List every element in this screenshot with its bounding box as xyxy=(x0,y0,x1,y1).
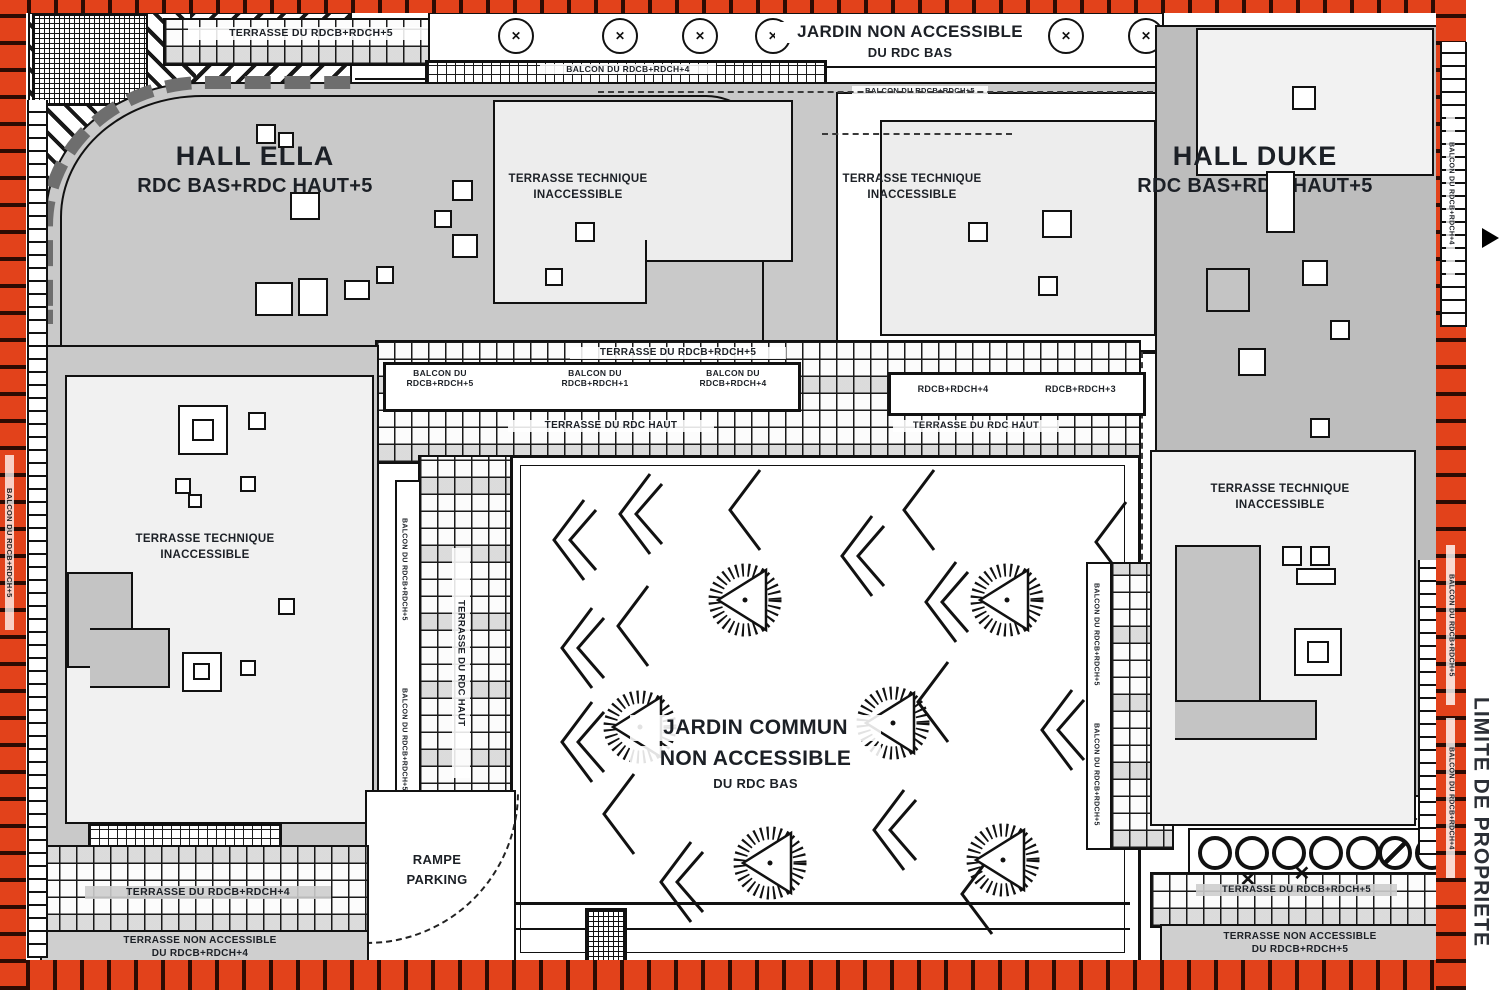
roof-vent xyxy=(255,282,293,316)
label-terrasse-mid: TERRASSE DU RDCB+RDCH+5 xyxy=(570,347,786,359)
label-terrasse-bottom-right: TERRASSE DU RDCB+RDCH+5 xyxy=(1196,884,1397,896)
roof-vent xyxy=(1310,418,1330,438)
label-jardin-top-1: JARDIN NON ACCESSIBLE xyxy=(775,22,1045,43)
label-balcon-right-v2: BALCON DU RDCB+RDCH+5 xyxy=(1446,545,1455,705)
label-jardin-commun-1: JARDIN COMMUN xyxy=(630,715,881,741)
roof-vent xyxy=(248,412,266,430)
tree-icon: ✕ xyxy=(1048,18,1084,54)
tree-cross-icon: ✕ xyxy=(1061,29,1071,43)
property-border-top xyxy=(0,0,1462,13)
roof-vent-gray xyxy=(1206,268,1250,312)
label-terrasse-technique-2a: TERRASSE TECHNIQUE xyxy=(812,172,1012,186)
tree-icon: ✕ xyxy=(682,18,718,54)
label-balcon-top: BALCON DU RDCB+RDCH+4 xyxy=(540,64,716,74)
label-hall-ella: HALL ELLA xyxy=(130,140,380,173)
label-balcon-right-v3: BALCON DU RDCB+RDCH+4 xyxy=(1446,718,1455,878)
roof-vent xyxy=(968,222,988,242)
zigzag-decoration xyxy=(548,498,598,582)
roof-vent xyxy=(188,494,202,508)
north-arrow-icon xyxy=(1482,228,1499,248)
roof-vent xyxy=(344,280,370,300)
tree-icon: ✕ xyxy=(498,18,534,54)
planter-circle xyxy=(1235,836,1269,870)
label-terrasse-rdc-haut-2: TERRASSE DU RDC HAUT xyxy=(893,420,1059,432)
zigzag-decoration xyxy=(655,840,705,924)
label-bottom-right-band-2: DU RDCB+RDCH+5 xyxy=(1180,944,1420,956)
roof-vent xyxy=(1282,546,1302,566)
roof-vent xyxy=(192,419,214,441)
label-balcon-right-col-2: BALCON DU RDCB+RDCH+5 xyxy=(1091,708,1100,840)
dashed-line xyxy=(822,133,1012,135)
dark-tree-mark: ✕ xyxy=(1290,862,1314,886)
garden-tree xyxy=(958,815,1048,905)
label-terrasse-technique-4a: TERRASSE TECHNIQUE xyxy=(1180,482,1380,496)
label-bottom-right-band-1: TERRASSE NON ACCESSIBLE xyxy=(1180,931,1420,943)
label-bottom-left-band-2: DU RDCB+RDCH+4 xyxy=(80,948,320,960)
label-rdcb3: RDCB+RDCH+3 xyxy=(1028,384,1133,395)
label-terrasse-technique-2b: INACCESSIBLE xyxy=(812,188,1012,202)
label-balcon-4: BALCON DU RDCB+RDCH+4 xyxy=(683,368,783,389)
roof-vent xyxy=(298,278,328,316)
roof-vent xyxy=(376,266,394,284)
label-jardin-top-2: DU RDC BAS xyxy=(840,45,980,61)
site-plan: TERRASSE DU RDCB+RDCH+5 ✕ ✕ ✕ ✕ ✕ ✕ JARD… xyxy=(0,0,1500,990)
label-hall-duke: HALL DUKE xyxy=(1130,140,1380,173)
label-terrasse-bottom-left: TERRASSE DU RDCB+RDCH+4 xyxy=(85,886,331,899)
roof-vent xyxy=(434,210,452,228)
planter-circle-slashed xyxy=(1378,836,1412,870)
balcon-4-line2: RDCB+RDCH+4 xyxy=(683,378,783,388)
zigzag-decoration xyxy=(898,468,948,552)
roof-vent xyxy=(1307,641,1329,663)
label-rdcb4: RDCB+RDCH+4 xyxy=(898,384,1008,395)
balcon-1-line1: BALCON DU xyxy=(545,368,645,378)
garden-tree xyxy=(700,555,790,645)
label-terrasse-technique-3a: TERRASSE TECHNIQUE xyxy=(105,532,305,546)
roof-vent xyxy=(175,478,191,494)
roof-vent xyxy=(1266,171,1295,233)
zigzag-decoration xyxy=(724,468,774,552)
tree-cross-icon: ✕ xyxy=(615,29,625,43)
roof-vent xyxy=(1238,348,1266,376)
stair-core-step xyxy=(90,628,170,688)
jardin-bottom-line xyxy=(515,902,1130,905)
balcon-4-line1: BALCON DU xyxy=(683,368,783,378)
stair-core-right-step xyxy=(1175,700,1317,740)
label-limite-propriete: LIMITE DE PROPRIETE xyxy=(1468,660,1494,985)
property-border-bottom xyxy=(26,960,1438,990)
roof-vent xyxy=(1042,210,1072,238)
roof-vent xyxy=(256,124,276,144)
roof-vent xyxy=(575,222,595,242)
roof-vent xyxy=(1310,546,1330,566)
label-rampe-1: RAMPE xyxy=(372,852,502,868)
garden-tree xyxy=(725,818,815,908)
label-balcon-left-vertical: BALCON DU RDCB+RDCH+5 xyxy=(5,455,14,630)
roof-vent xyxy=(545,268,563,286)
roof-vent xyxy=(452,180,473,201)
zigzag-decoration xyxy=(556,606,606,690)
label-balcon-1: BALCON DU RDCB+RDCH+1 xyxy=(545,368,645,389)
planter-circle xyxy=(1198,836,1232,870)
balcon-5-line1: BALCON DU xyxy=(390,368,490,378)
roof-vent xyxy=(193,663,210,680)
balcon-5-line2: RDCB+RDCH+5 xyxy=(390,378,490,388)
roof-vent xyxy=(240,660,256,676)
label-terrasse-technique-1a: TERRASSE TECHNIQUE xyxy=(478,172,678,186)
label-terrasse-technique-1b: INACCESSIBLE xyxy=(478,188,678,202)
ladder-strip-left xyxy=(27,100,48,958)
zigzag-decoration xyxy=(614,472,664,556)
label-bottom-left-band-1: TERRASSE NON ACCESSIBLE xyxy=(80,935,320,947)
roof-vent xyxy=(1038,276,1058,296)
label-terrasse-technique-3b: INACCESSIBLE xyxy=(105,548,305,562)
roof-vent xyxy=(240,476,256,492)
label-jardin-commun-3: DU RDC BAS xyxy=(690,776,821,792)
zigzag-decoration xyxy=(612,584,662,668)
roof-vent xyxy=(1296,568,1336,585)
label-terrasse-technique-4b: INACCESSIBLE xyxy=(1180,498,1380,512)
tree-cross-icon: ✕ xyxy=(695,29,705,43)
planter-circle xyxy=(1346,836,1380,870)
balcon-1-line2: RDCB+RDCH+1 xyxy=(545,378,645,388)
label-rampe-2: PARKING xyxy=(372,872,502,888)
garden-tree xyxy=(962,555,1052,645)
label-balcon-5: BALCON DU RDCB+RDCH+5 xyxy=(390,368,490,389)
terrasse-technique-panel-1-step xyxy=(493,240,647,304)
label-terrasse-rdc-haut-1: TERRASSE DU RDC HAUT xyxy=(508,420,714,432)
label-balcon-right-col-1: BALCON DU RDCB+RDCH+5 xyxy=(1091,568,1100,700)
zigzag-decoration xyxy=(836,514,886,598)
zigzag-decoration xyxy=(1036,688,1086,772)
label-terrasse-top: TERRASSE DU RDCB+RDCH+5 xyxy=(188,27,434,40)
tree-icon: ✕ xyxy=(602,18,638,54)
zigzag-decoration xyxy=(598,772,648,856)
terrasse-technique-panel-2 xyxy=(880,120,1156,336)
roof-vent xyxy=(290,192,320,220)
label-terrasse-rdc-haut-vertical: TERRASSE DU RDC HAUT xyxy=(452,548,470,778)
label-jardin-commun-2: NON ACCESSIBLE xyxy=(630,746,881,772)
roof-vent xyxy=(278,598,295,615)
label-balcon-right-v1: BALCON DU RDCB+RDCH+4 xyxy=(1446,108,1455,278)
dashed-line xyxy=(598,91,1153,93)
label-balcon-mid-v1: BALCON DU RDCB+RDCH+5 xyxy=(399,488,408,650)
roof-vent xyxy=(1292,86,1316,110)
roof-vent xyxy=(1302,260,1328,286)
zigzag-decoration xyxy=(868,788,918,872)
label-hall-ella-levels: RDC BAS+RDC HAUT+5 xyxy=(105,174,405,198)
roof-vent xyxy=(1330,320,1350,340)
roof-vent xyxy=(452,234,478,258)
label-hall-duke-levels: RDC BAS+RDC HAUT+5 xyxy=(1105,174,1405,198)
roof-vent xyxy=(278,132,294,148)
tree-cross-icon: ✕ xyxy=(511,29,521,43)
tree-cross-icon: ✕ xyxy=(1141,29,1151,43)
planter-circle xyxy=(1309,836,1343,870)
terrasse-top-strip xyxy=(163,18,457,66)
